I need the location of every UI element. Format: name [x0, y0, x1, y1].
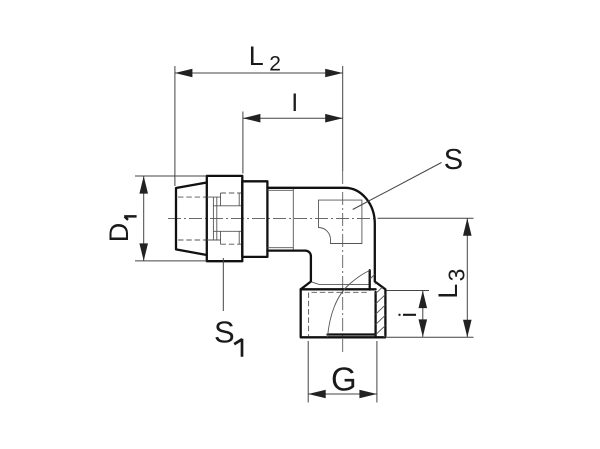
svg-text:S: S	[444, 144, 463, 176]
svg-text:D: D	[104, 223, 134, 243]
svg-text:L3: L3	[433, 269, 470, 299]
svg-text:S: S	[214, 315, 235, 350]
svg-text:I: I	[291, 89, 298, 117]
svg-text:2: 2	[269, 52, 281, 75]
svg-text:G: G	[331, 360, 357, 397]
svg-text:i: i	[395, 312, 422, 317]
svg-text:L: L	[249, 41, 264, 71]
